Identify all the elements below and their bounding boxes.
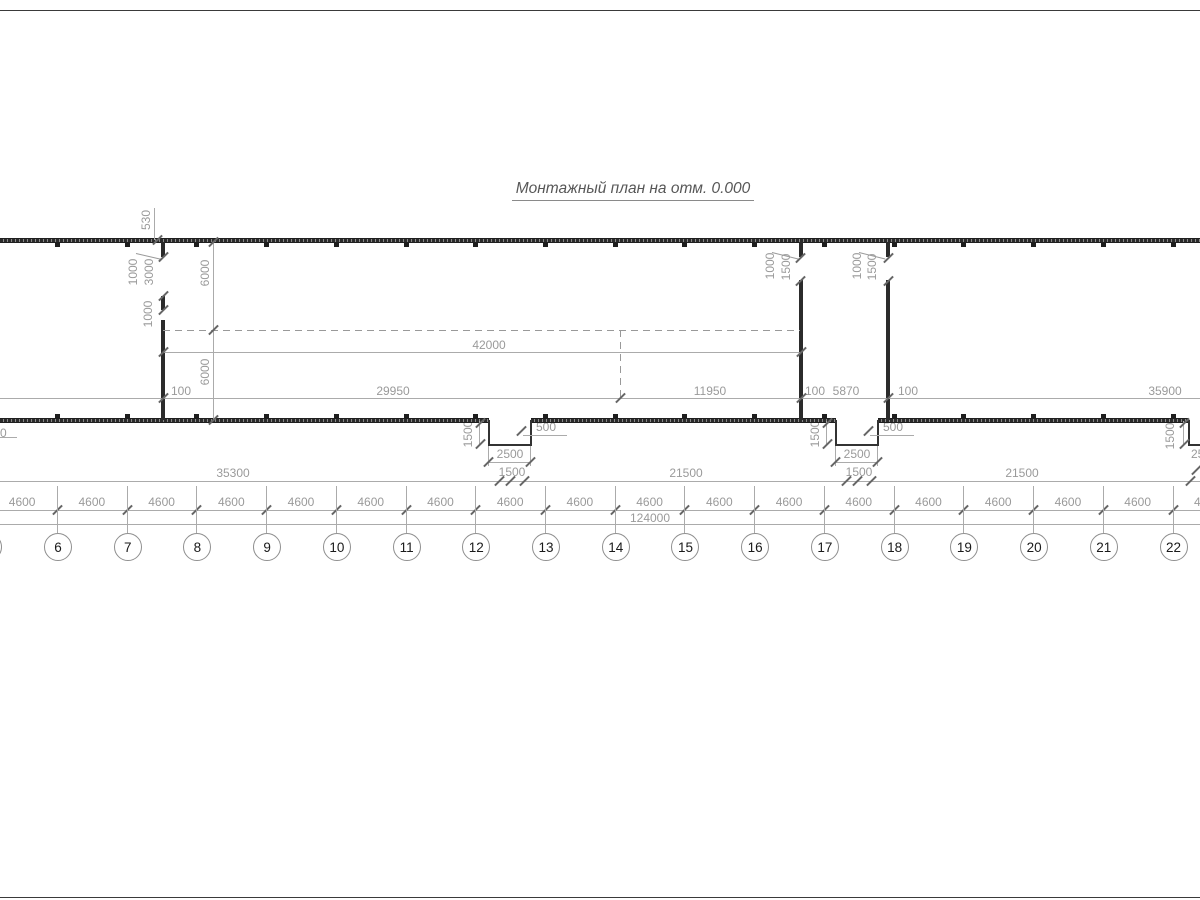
bay-dim-label: 4600 bbox=[494, 496, 526, 508]
bay-dim-label: 4600 bbox=[634, 496, 666, 508]
grid-extension-line bbox=[196, 486, 197, 533]
wall-segment bbox=[161, 320, 165, 420]
dim-tick bbox=[822, 439, 833, 450]
bay-dim-label: 4600 bbox=[703, 496, 735, 508]
grid-extension-line bbox=[754, 486, 755, 533]
grid-extension-line bbox=[894, 486, 895, 533]
bay-dim-label: 4600 bbox=[1191, 496, 1200, 508]
dashed-reference-line bbox=[620, 330, 621, 398]
bay-dim-label: 4600 bbox=[76, 496, 108, 508]
cad-drawing-canvas: Монтажный план на отм. 0.000 530 1000 30… bbox=[0, 0, 1200, 900]
dim-label-35900: 35900 bbox=[1140, 385, 1190, 397]
dim-tick bbox=[1191, 465, 1200, 476]
axis-bubble: 12 bbox=[462, 533, 490, 561]
notch-wall bbox=[488, 420, 490, 446]
dimension-line bbox=[835, 462, 878, 463]
column-mark bbox=[543, 243, 548, 247]
dimension-line bbox=[523, 435, 567, 436]
dim-label-100: 100 bbox=[893, 385, 923, 397]
axis-bubble: 11 bbox=[393, 533, 421, 561]
bay-dim-label: 4600 bbox=[982, 496, 1014, 508]
column-mark bbox=[822, 243, 827, 247]
grid-extension-line bbox=[1103, 486, 1104, 533]
bay-dim-label: 4600 bbox=[913, 496, 945, 508]
bay-dim-label: 4600 bbox=[285, 496, 317, 508]
dim-label-1000: 1000 bbox=[142, 294, 154, 334]
column-mark bbox=[55, 414, 60, 418]
dim-label-5870: 5870 bbox=[826, 385, 866, 397]
column-mark bbox=[404, 243, 409, 247]
dim-label-6000: 6000 bbox=[199, 352, 211, 392]
grid-extension-line bbox=[684, 486, 685, 533]
bay-dim-label: 4600 bbox=[843, 496, 875, 508]
axis-bubble: 14 bbox=[602, 533, 630, 561]
axis-bubble: 19 bbox=[950, 533, 978, 561]
column-mark bbox=[1101, 243, 1106, 247]
dim-label-2500-clipped: 2500 bbox=[1191, 448, 1200, 460]
column-mark bbox=[543, 414, 548, 418]
column-mark bbox=[822, 414, 827, 418]
grid-extension-line bbox=[1033, 486, 1034, 533]
grid-extension-line bbox=[615, 486, 616, 533]
column-mark bbox=[752, 243, 757, 247]
bay-dim-label: 4600 bbox=[424, 496, 456, 508]
bay-dim-label: 4600 bbox=[146, 496, 178, 508]
axis-bubble: 10 bbox=[323, 533, 351, 561]
notch-wall bbox=[1188, 444, 1200, 446]
notch-wall bbox=[488, 444, 532, 446]
column-mark bbox=[473, 414, 478, 418]
column-mark bbox=[1171, 414, 1176, 418]
notch-wall bbox=[1188, 420, 1190, 446]
grid-extension-line bbox=[824, 486, 825, 533]
dim-label-21500: 21500 bbox=[992, 467, 1052, 479]
axis-bubble: 8 bbox=[183, 533, 211, 561]
column-mark bbox=[752, 414, 757, 418]
frame-line-top bbox=[0, 10, 1200, 11]
axis-bubble: 13 bbox=[532, 533, 560, 561]
column-mark bbox=[892, 243, 897, 247]
dimension-line bbox=[0, 437, 17, 438]
column-mark bbox=[682, 243, 687, 247]
column-mark bbox=[334, 243, 339, 247]
bay-dim-label: 4600 bbox=[355, 496, 387, 508]
dim-label-530: 530 bbox=[140, 200, 152, 240]
axis-bubble: 9 bbox=[253, 533, 281, 561]
frame-line-bottom bbox=[0, 897, 1200, 898]
axis-bubble: 20 bbox=[1020, 533, 1048, 561]
grid-extension-line bbox=[127, 486, 128, 533]
axis-bubble: 15 bbox=[671, 533, 699, 561]
column-mark bbox=[264, 243, 269, 247]
column-mark bbox=[125, 414, 130, 418]
column-mark bbox=[682, 414, 687, 418]
column-mark bbox=[613, 243, 618, 247]
column-mark bbox=[125, 243, 130, 247]
axis-bubble: 16 bbox=[741, 533, 769, 561]
dashed-reference-line bbox=[163, 330, 800, 331]
axis-bubble: 21 bbox=[1090, 533, 1118, 561]
wall-bottom-band bbox=[878, 418, 1188, 423]
dim-label-100: 100 bbox=[166, 385, 196, 397]
column-mark bbox=[961, 414, 966, 418]
grid-extension-line bbox=[545, 486, 546, 533]
column-mark bbox=[1171, 243, 1176, 247]
dimension-line bbox=[488, 462, 531, 463]
notch-wall bbox=[835, 444, 879, 446]
grid-extension-line bbox=[57, 486, 58, 533]
grid-extension-line bbox=[336, 486, 337, 533]
bay-dim-label: 4600 bbox=[6, 496, 38, 508]
notch-wall bbox=[877, 420, 879, 446]
column-mark bbox=[264, 414, 269, 418]
wall-bottom-band bbox=[531, 418, 836, 423]
dim-tick bbox=[475, 439, 486, 450]
column-mark bbox=[404, 414, 409, 418]
dim-label-35300: 35300 bbox=[203, 467, 263, 479]
wall-bottom-band bbox=[0, 418, 489, 423]
grid-extension-line bbox=[266, 486, 267, 533]
notch-wall bbox=[530, 420, 532, 446]
column-mark bbox=[55, 243, 60, 247]
notch-wall bbox=[835, 420, 837, 446]
dimension-line bbox=[0, 398, 1200, 399]
grid-extension-line bbox=[1173, 486, 1174, 533]
grid-extension-line bbox=[406, 486, 407, 533]
dim-label-42000: 42000 bbox=[464, 339, 514, 351]
column-mark bbox=[194, 414, 199, 418]
dim-label-2500: 2500 bbox=[488, 448, 532, 460]
drawing-title: Монтажный план на отм. 0.000 bbox=[500, 180, 766, 198]
dim-label-6000: 6000 bbox=[199, 253, 211, 293]
dim-label-2500: 2500 bbox=[835, 448, 879, 460]
dim-label-1500: 1500 bbox=[866, 247, 878, 287]
grid-extension-line bbox=[963, 486, 964, 533]
column-mark bbox=[892, 414, 897, 418]
axis-bubble-partial bbox=[0, 533, 2, 561]
dim-label-11950: 11950 bbox=[685, 385, 735, 397]
column-mark bbox=[473, 243, 478, 247]
column-mark bbox=[1101, 414, 1106, 418]
dimension-line bbox=[0, 524, 1200, 525]
dim-label-29950: 29950 bbox=[368, 385, 418, 397]
column-mark bbox=[194, 243, 199, 247]
dimension-line bbox=[163, 352, 801, 353]
dimension-line bbox=[0, 481, 1200, 482]
dimension-line bbox=[0, 510, 1200, 511]
column-mark bbox=[613, 414, 618, 418]
dim-label-21500: 21500 bbox=[656, 467, 716, 479]
column-mark bbox=[1031, 414, 1036, 418]
bay-dim-label: 4600 bbox=[773, 496, 805, 508]
axis-bubble: 6 bbox=[44, 533, 72, 561]
grid-extension-line bbox=[475, 486, 476, 533]
axis-bubble: 7 bbox=[114, 533, 142, 561]
column-mark bbox=[334, 414, 339, 418]
bay-dim-label: 4600 bbox=[564, 496, 596, 508]
bay-dim-label: 4600 bbox=[1052, 496, 1084, 508]
wall-top-band bbox=[0, 238, 1200, 243]
dimension-line bbox=[870, 435, 914, 436]
axis-bubble: 17 bbox=[811, 533, 839, 561]
dim-label-1000: 1000 bbox=[127, 252, 139, 292]
dimension-line bbox=[154, 208, 155, 240]
bay-dim-label: 4600 bbox=[215, 496, 247, 508]
dim-label-1500: 1500 bbox=[780, 247, 792, 287]
bay-dim-label: 4600 bbox=[1122, 496, 1154, 508]
column-mark bbox=[961, 243, 966, 247]
axis-bubble: 18 bbox=[881, 533, 909, 561]
dim-label-124000: 124000 bbox=[615, 512, 685, 524]
column-mark bbox=[1031, 243, 1036, 247]
axis-bubble: 22 bbox=[1160, 533, 1188, 561]
